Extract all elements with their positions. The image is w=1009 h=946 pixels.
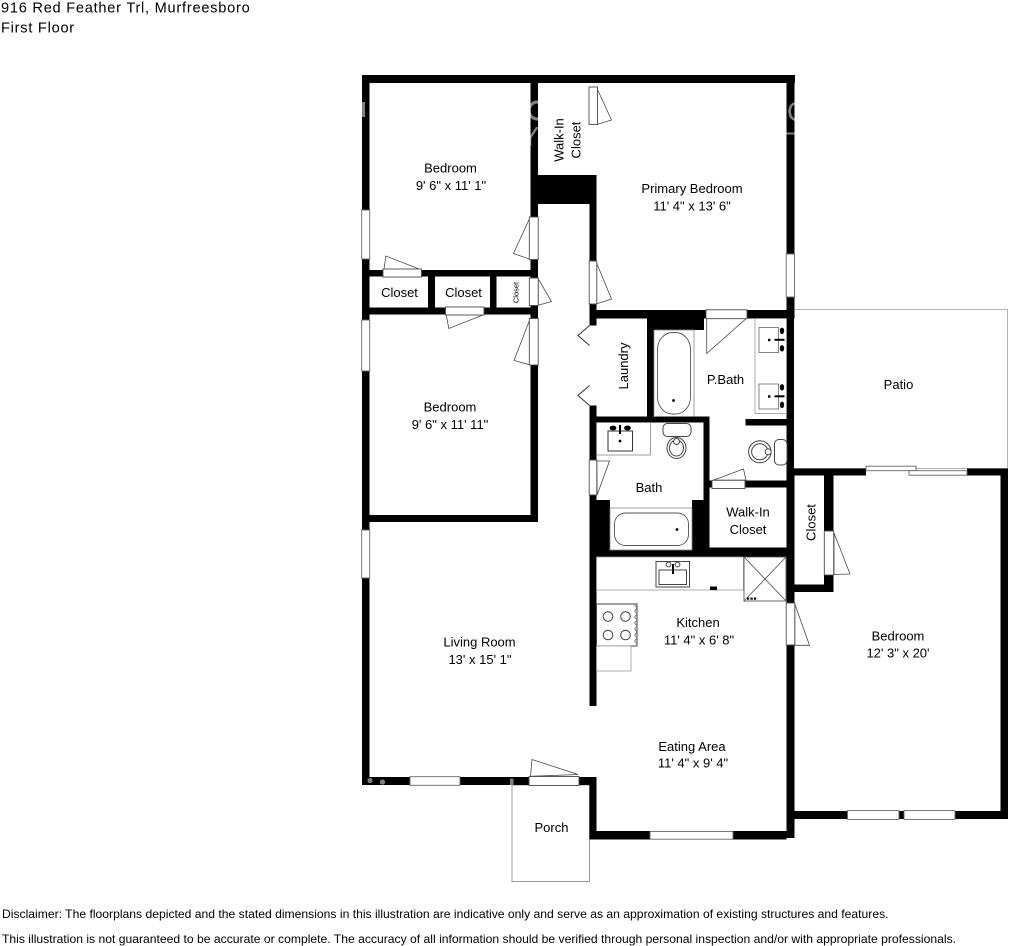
svg-text:Closet: Closet <box>445 285 482 300</box>
svg-text:Walk-In: Walk-In <box>552 118 567 162</box>
svg-text:11' 4" x 9' 4": 11' 4" x 9' 4" <box>658 756 729 771</box>
svg-text:Bedroom: Bedroom <box>424 400 477 415</box>
svg-text:Closet: Closet <box>804 504 819 541</box>
svg-text:Bedroom: Bedroom <box>872 629 925 644</box>
svg-text:12' 3" x 20': 12' 3" x 20' <box>866 646 929 661</box>
svg-text:H: H <box>782 119 801 149</box>
svg-text:Living Room: Living Room <box>443 635 515 650</box>
svg-text:9' 6" x 11' 11": 9' 6" x 11' 11" <box>412 417 489 432</box>
svg-text:Eating Area: Eating Area <box>658 739 726 754</box>
svg-text:Closet: Closet <box>512 281 521 303</box>
svg-text:P.Bath: P.Bath <box>707 372 744 387</box>
svg-text:11' 4" x 13' 6": 11' 4" x 13' 6" <box>653 199 731 214</box>
svg-text:Closet: Closet <box>730 522 767 537</box>
svg-text:Bedroom: Bedroom <box>424 161 477 176</box>
svg-text:Kitchen: Kitchen <box>676 615 719 630</box>
svg-text:916 Red Feather Trl, Murfreesb: 916 Red Feather Trl, Murfreesboro <box>1 1 250 17</box>
svg-text:Primary Bedroom: Primary Bedroom <box>641 181 742 196</box>
svg-text:First Floor: First Floor <box>1 21 75 37</box>
svg-text:Porch: Porch <box>535 820 569 835</box>
svg-text:11' 4" x 6' 8": 11' 4" x 6' 8" <box>664 633 735 648</box>
svg-text:Walk-In: Walk-In <box>726 505 770 520</box>
svg-text:Disclaimer: The floorplans dep: Disclaimer: The floorplans depicted and … <box>2 907 889 921</box>
svg-text:Closet: Closet <box>569 121 584 158</box>
svg-text:9' 6" x 11' 1": 9' 6" x 11' 1" <box>416 178 487 193</box>
svg-text:T: T <box>583 121 600 152</box>
svg-text:Bath: Bath <box>636 480 663 495</box>
svg-text:13' x 15' 1": 13' x 15' 1" <box>448 652 511 667</box>
svg-text:This illustration is not guara: This illustration is not guaranteed to b… <box>2 932 956 946</box>
svg-text:Patio: Patio <box>884 377 914 392</box>
svg-text:Laundry: Laundry <box>616 342 631 389</box>
svg-text:Y: Y <box>521 121 540 152</box>
svg-text:Closet: Closet <box>381 285 418 300</box>
